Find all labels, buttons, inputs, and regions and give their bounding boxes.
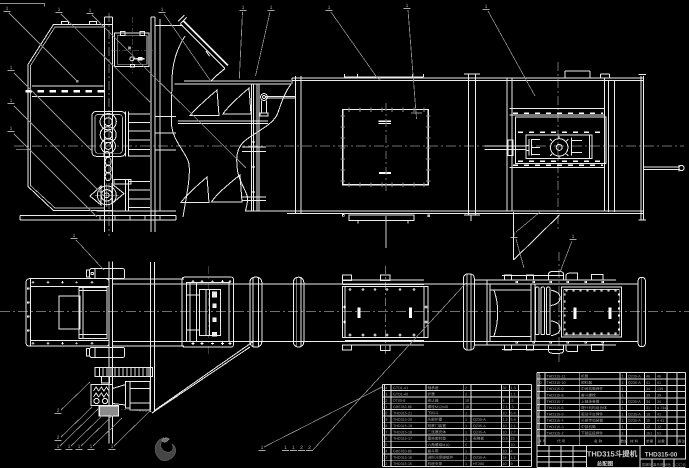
svg-text:2.1: 2.1 <box>502 405 507 409</box>
svg-text:10: 10 <box>502 424 506 428</box>
svg-text:THD315-00: THD315-00 <box>645 451 678 458</box>
svg-text:GB5783-86: GB5783-86 <box>393 449 412 453</box>
svg-text:上轴承装置: 上轴承装置 <box>581 399 600 404</box>
svg-text:39: 39 <box>657 393 661 397</box>
svg-text:THD315-11: THD315-11 <box>546 375 565 379</box>
svg-text:1: 1 <box>621 375 623 379</box>
svg-text:32: 32 <box>502 386 506 390</box>
svg-text:46: 46 <box>657 375 661 379</box>
svg-text:12: 12 <box>657 425 661 429</box>
svg-text:Q235-A: Q235-A <box>473 430 486 434</box>
svg-text:THD315-21: THD315-21 <box>393 411 412 415</box>
svg-text:Q235-A: Q235-A <box>473 456 486 460</box>
svg-text:12: 12 <box>383 462 387 466</box>
svg-text:备注: 备注 <box>678 439 686 444</box>
svg-text:畚斗螺栓: 畚斗螺栓 <box>581 392 596 397</box>
svg-text:中间机筒焊件: 中间机筒焊件 <box>581 386 603 391</box>
svg-text:中部机筒: 中部机筒 <box>581 424 596 429</box>
svg-text:THD315-18: THD315-18 <box>393 430 412 434</box>
svg-text:1: 1 <box>621 400 623 404</box>
svg-text:1: 1 <box>465 430 467 434</box>
svg-text:34: 34 <box>646 387 650 391</box>
svg-text:1: 1 <box>465 462 467 466</box>
svg-text:下料斗: 下料斗 <box>427 410 438 415</box>
svg-text:THD315-19: THD315-19 <box>393 424 412 428</box>
svg-text:1: 1 <box>465 418 467 422</box>
svg-text:观察门装置: 观察门装置 <box>427 423 446 428</box>
svg-text:22: 22 <box>383 399 387 403</box>
svg-text:THD315-6: THD315-6 <box>546 406 563 410</box>
svg-text:GB5782-86: GB5782-86 <box>393 405 412 409</box>
svg-text:3: 3 <box>538 425 540 429</box>
svg-text:1: 1 <box>465 424 467 428</box>
svg-text:材 料: 材 料 <box>630 439 639 444</box>
svg-text:头部护罩: 头部护罩 <box>427 417 442 422</box>
svg-text:1: 1 <box>465 456 467 460</box>
svg-text:10: 10 <box>502 449 506 453</box>
svg-text:10: 10 <box>465 405 469 409</box>
svg-text:9: 9 <box>538 387 540 391</box>
svg-text:提升机构组合体: 提升机构组合体 <box>581 405 607 410</box>
svg-text:15: 15 <box>383 443 387 447</box>
svg-text:数量: 数量 <box>620 439 628 444</box>
svg-text:2: 2 <box>465 386 467 390</box>
svg-text:1.3: 1.3 <box>510 386 515 390</box>
svg-text:16: 16 <box>383 437 387 441</box>
svg-text:4: 4 <box>538 419 540 423</box>
svg-text:11: 11 <box>538 375 542 379</box>
svg-text:31: 31 <box>646 406 650 410</box>
svg-text:国家标准先进制造 二〇〇五: 国家标准先进制造 二〇〇五 <box>642 462 687 467</box>
svg-text:14: 14 <box>383 449 387 453</box>
svg-text:六角螺母M10: 六角螺母M10 <box>427 442 449 447</box>
svg-text:下部区段焊件: 下部区段焊件 <box>581 430 603 435</box>
svg-text:5: 5 <box>465 443 467 447</box>
svg-text:7: 7 <box>538 400 540 404</box>
svg-text:THD315-3: THD315-3 <box>546 425 563 429</box>
svg-text:总重: 总重 <box>657 439 665 444</box>
svg-text:41: 41 <box>646 381 650 385</box>
svg-text:18: 18 <box>383 424 387 428</box>
svg-text:1: 1 <box>621 393 623 397</box>
svg-text:151: 151 <box>646 431 652 435</box>
svg-text:Q235-A: Q235-A <box>628 381 641 385</box>
svg-text:DTII5-8: DTII5-8 <box>393 399 405 403</box>
svg-text:THD315-7: THD315-7 <box>546 400 563 404</box>
svg-text:2.7: 2.7 <box>510 430 515 434</box>
svg-text:Q235-A: Q235-A <box>473 424 486 428</box>
svg-text:1: 1 <box>465 411 467 415</box>
svg-text:2.1: 2.1 <box>510 424 515 428</box>
svg-text:THD315-16: THD315-16 <box>393 456 412 460</box>
svg-text:THD315-17: THD315-17 <box>393 437 412 441</box>
svg-text:1: 1 <box>621 425 623 429</box>
svg-text:10: 10 <box>465 399 469 403</box>
svg-text:THD315斗提机: THD315斗提机 <box>587 448 638 458</box>
svg-text:THD315-2: THD315-2 <box>546 431 563 435</box>
svg-text:1.2: 1.2 <box>502 418 507 422</box>
svg-text:1: 1 <box>621 419 623 423</box>
svg-text:机座支架: 机座支架 <box>427 461 442 466</box>
svg-text:23: 23 <box>510 437 514 441</box>
svg-text:螺栓M12x40: 螺栓M12x40 <box>427 404 448 409</box>
svg-text:1: 1 <box>621 381 623 385</box>
svg-text:Q235-A: Q235-A <box>628 400 641 404</box>
svg-text:15: 15 <box>646 419 650 423</box>
svg-text:单重: 单重 <box>646 439 654 444</box>
svg-text:.5: .5 <box>510 399 513 403</box>
svg-text:Q235-A: Q235-A <box>628 419 641 423</box>
svg-text:5: 5 <box>538 412 540 416</box>
svg-text:1: 1 <box>621 406 623 410</box>
svg-text:23: 23 <box>383 392 387 396</box>
svg-text:10: 10 <box>646 412 650 416</box>
svg-text:THD315-8: THD315-8 <box>546 393 563 397</box>
svg-text:4: 4 <box>502 399 504 403</box>
svg-text:Q235-A: Q235-A <box>628 412 641 416</box>
svg-text:10: 10 <box>502 430 506 434</box>
svg-text:21: 21 <box>383 405 387 409</box>
svg-text:1: 1 <box>621 412 623 416</box>
svg-text:HT200: HT200 <box>473 462 484 466</box>
svg-text:GTD1-41: GTD1-41 <box>393 386 408 390</box>
svg-text:4 41: 4 41 <box>657 419 664 423</box>
svg-text:9: 9 <box>510 462 512 466</box>
svg-text:4: 4 <box>510 449 512 453</box>
svg-text:1.1: 1.1 <box>510 392 515 396</box>
svg-text:THD315-5: THD315-5 <box>546 412 563 416</box>
svg-text:1: 1 <box>621 431 623 435</box>
svg-text:10: 10 <box>510 443 514 447</box>
svg-text:1: 1 <box>465 449 467 453</box>
svg-text:THD315-15: THD315-15 <box>393 462 412 466</box>
svg-text:6.4: 6.4 <box>510 411 515 415</box>
svg-text:逆止器: 逆止器 <box>427 398 438 403</box>
svg-text:6: 6 <box>538 406 540 410</box>
svg-text:GTD1-40: GTD1-40 <box>393 392 408 396</box>
svg-text:.3: .3 <box>510 405 513 409</box>
svg-text:畚斗带: 畚斗带 <box>427 448 438 453</box>
svg-text:41: 41 <box>657 381 661 385</box>
svg-text:8: 8 <box>538 393 540 397</box>
svg-text:4 7345: 4 7345 <box>657 406 668 410</box>
svg-text:20: 20 <box>383 411 387 415</box>
svg-text:12: 12 <box>646 425 650 429</box>
svg-text:0.5: 0.5 <box>502 437 507 441</box>
svg-text:1: 1 <box>465 437 467 441</box>
svg-text:17: 17 <box>383 430 387 434</box>
svg-text:头部传动装置: 头部传动装置 <box>581 418 603 423</box>
svg-text:THD315-4: THD315-4 <box>546 419 563 423</box>
svg-text:机筒: 机筒 <box>581 374 589 379</box>
svg-text:14: 14 <box>502 456 506 460</box>
svg-text:石棉板: 石棉板 <box>473 436 484 441</box>
svg-text:34: 34 <box>646 400 650 404</box>
svg-text:代 号: 代 号 <box>557 439 566 444</box>
svg-text:41: 41 <box>657 412 661 416</box>
svg-text:进料斗焊接组件: 进料斗焊接组件 <box>427 455 453 460</box>
svg-text:139: 139 <box>657 387 663 391</box>
svg-text:Q235-A: Q235-A <box>473 418 486 422</box>
svg-text:驱动平台焊件: 驱动平台焊件 <box>581 411 603 416</box>
svg-text:护罩: 护罩 <box>427 391 435 396</box>
svg-text:1.1: 1.1 <box>510 456 515 460</box>
svg-text:总配图: 总配图 <box>597 459 614 467</box>
svg-text:51: 51 <box>657 431 661 435</box>
svg-text:THD315-10: THD315-10 <box>546 381 565 385</box>
svg-text:13: 13 <box>383 456 387 460</box>
svg-text:39: 39 <box>646 393 650 397</box>
svg-text:10: 10 <box>538 381 542 385</box>
svg-text:名 称: 名 称 <box>594 439 603 444</box>
svg-text:Q235-A: Q235-A <box>628 375 641 379</box>
svg-text:2: 2 <box>465 392 467 396</box>
svg-text:5.4: 5.4 <box>510 418 515 422</box>
svg-text:轴承座: 轴承座 <box>427 385 438 390</box>
svg-text:24: 24 <box>383 386 387 390</box>
svg-text:THD315-20: THD315-20 <box>393 418 412 422</box>
svg-text:1: 1 <box>621 387 623 391</box>
svg-text:序 号: 序 号 <box>538 439 547 444</box>
svg-text:19: 19 <box>383 418 387 422</box>
svg-text:THD315-9: THD315-9 <box>546 387 563 391</box>
svg-text:2: 2 <box>538 431 540 435</box>
svg-text:二连罩壳体: 二连罩壳体 <box>427 429 446 434</box>
svg-text:10: 10 <box>502 462 506 466</box>
svg-text:罩壳密封垫: 罩壳密封垫 <box>427 436 446 441</box>
svg-text:卸料器: 卸料器 <box>581 380 592 385</box>
svg-text:34: 34 <box>657 400 661 404</box>
svg-text:10: 10 <box>502 411 506 415</box>
svg-text:46: 46 <box>646 375 650 379</box>
